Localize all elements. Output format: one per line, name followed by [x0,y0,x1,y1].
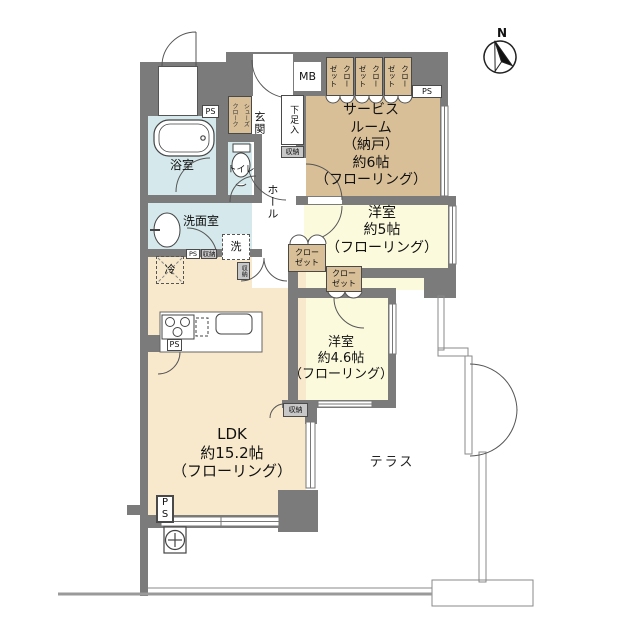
compass-icon [480,36,521,77]
storage-ldk-corner: 収納 [283,403,308,417]
closet-west46: クロー ゼット [326,266,362,292]
bath-label: 浴室 [160,158,204,173]
washer-space: 洗 [222,234,250,260]
bathtub [154,120,214,156]
pipe-space-kitchen: PS [167,339,182,351]
closet-top-1: クロー ゼット [326,57,354,96]
meter-box-label: MB [294,62,321,91]
storage-under-shoebox: 収納 [281,146,304,158]
pipe-space-entrance: PS [202,105,219,118]
west-room-5-label: 洋室 約5帖 （フローリング） [312,203,452,259]
storage-by-washer: 収納 [237,262,250,280]
water-heater-icon [164,527,186,553]
kitchen-sink [216,314,252,334]
fixtures-and-lines-layer [0,0,640,640]
west-room-46-label: 洋室 約4.6帖 （フローリング） [278,331,404,387]
hall-label: ホール [264,178,280,226]
shoes-closet: シューズ クローク [228,96,252,134]
compass-north-label: N [494,26,510,40]
washroom-label: 洗面室 [176,214,226,229]
ldk-label: LDK 約15.2帖 （フローリング） [156,422,308,484]
terrace-label: テラス [364,455,420,471]
pipe-space-mid: PS [186,249,200,259]
storage-mid: 収納 [201,249,217,259]
floor-plan: N MB クロー ゼット クロー ゼット クロー ゼット PS PS シューズ … [0,0,640,640]
closet-top-2: クロー ゼット [355,57,383,96]
pipe-space-bottom: P S [156,495,174,523]
closet-west5: クロー ゼット [288,244,326,272]
fridge-space: 冷 [156,256,184,284]
toilet-label: トイレ [227,165,255,177]
shoe-cabinet-label: 下足入 [281,95,304,145]
service-room-label: サービス ルーム （納戸） 約6帖 （フローリング） [304,97,438,195]
closet-top-3: クロー ゼット [384,57,412,96]
entrance-label: 玄関 [251,101,267,145]
